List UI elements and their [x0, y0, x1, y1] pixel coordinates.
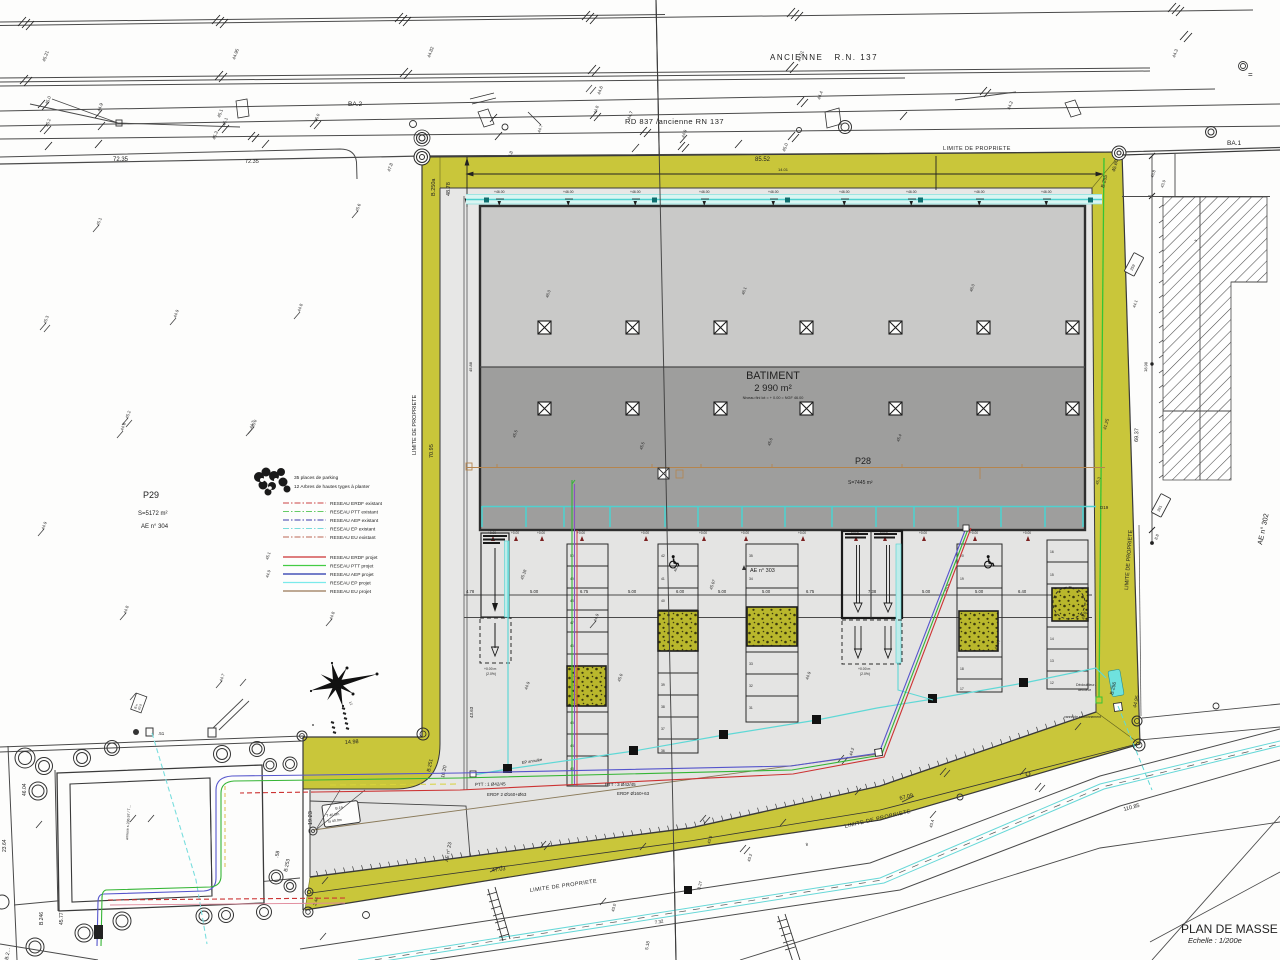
svg-text:37: 37: [661, 727, 665, 731]
svg-text:PTT : 1 Ø42/45: PTT : 1 Ø42/45: [475, 781, 506, 787]
svg-text:RESEAU PTT existant: RESEAU PTT existant: [330, 510, 379, 516]
svg-text:RESEAU PTT projet: RESEAU PTT projet: [330, 564, 374, 570]
svg-text:43.63: 43.63: [469, 706, 474, 718]
svg-text:Echelle : 1/200e: Echelle : 1/200e: [1188, 936, 1242, 945]
svg-text:P29: P29: [143, 490, 159, 500]
svg-text:5.00: 5.00: [762, 589, 771, 594]
svg-text:46.04: 46.04: [22, 783, 28, 796]
svg-text:6.75: 6.75: [806, 589, 815, 594]
svg-text:19: 19: [960, 577, 964, 581]
svg-text:39: 39: [661, 683, 665, 687]
svg-text:+0.00: +0.00: [511, 531, 519, 535]
svg-text:6.40: 6.40: [1018, 589, 1027, 594]
svg-text:72.35: 72.35: [113, 157, 129, 163]
svg-text:Dédoubleur-: Dédoubleur-: [1076, 683, 1097, 687]
svg-text:ANCIENNE R.N. 137: ANCIENNE R.N. 137: [770, 53, 878, 62]
svg-text:5.00: 5.00: [718, 589, 727, 594]
svg-text:35: 35: [749, 554, 753, 558]
svg-text:45.77: 45.77: [59, 912, 65, 925]
svg-text:RESEAU ERDF projet: RESEAU ERDF projet: [330, 555, 378, 561]
svg-text:RESEAU EP projet: RESEAU EP projet: [330, 581, 371, 587]
svg-text:S=7445 m²: S=7445 m²: [848, 480, 873, 486]
svg-text:+46.00: +46.00: [699, 190, 710, 194]
svg-text:+0.00: +0.00: [970, 531, 978, 535]
svg-text:69.37: 69.37: [1134, 428, 1140, 442]
svg-text:RESEAU EP existant: RESEAU EP existant: [330, 527, 376, 533]
svg-text:+0.00 m: +0.00 m: [858, 667, 871, 671]
svg-text:23.64: 23.64: [2, 839, 8, 852]
svg-text:31: 31: [749, 706, 753, 710]
svg-text:17: 17: [960, 687, 964, 691]
svg-text:+0.00: +0.00: [641, 531, 649, 535]
svg-text:+46.00: +46.00: [494, 190, 505, 194]
svg-text:4.78: 4.78: [466, 589, 475, 594]
svg-text:85.52: 85.52: [755, 157, 771, 163]
svg-text:+0.00: +0.00: [741, 531, 749, 535]
svg-text:S=5172 m²: S=5172 m²: [138, 511, 168, 517]
svg-text:5.00: 5.00: [530, 589, 539, 594]
svg-text:70.95: 70.95: [429, 444, 435, 458]
svg-text:+46.00: +46.00: [563, 190, 574, 194]
svg-text:+0.00: +0.00: [537, 531, 545, 535]
svg-text:(2.0%): (2.0%): [860, 672, 870, 676]
svg-text:+0.00 m: +0.00 m: [484, 667, 497, 671]
svg-text:BA.1: BA.1: [1227, 140, 1241, 147]
svg-text:PTT : 3 Ø42/45: PTT : 3 Ø42/45: [605, 782, 636, 787]
svg-text:5.00: 5.00: [975, 589, 984, 594]
svg-text:72.35: 72.35: [245, 159, 259, 165]
svg-text:13: 13: [1050, 659, 1054, 663]
svg-text:18: 18: [960, 667, 964, 671]
svg-text:19.23: 19.23: [308, 811, 314, 825]
svg-text:ERDF 2 Ø160+Ø63: ERDF 2 Ø160+Ø63: [487, 792, 527, 797]
svg-text:B.246: B.246: [39, 912, 45, 925]
svg-text:45.88: 45.88: [468, 361, 473, 372]
svg-text:(2.0%): (2.0%): [486, 672, 496, 676]
svg-text:P28: P28: [855, 456, 871, 466]
svg-text:14.01: 14.01: [778, 167, 789, 172]
svg-text:6.75: 6.75: [580, 589, 589, 594]
svg-text:RESEAU ERDF existant: RESEAU ERDF existant: [330, 501, 383, 507]
svg-text:+0.00: +0.00: [577, 531, 585, 535]
svg-text:18.98: 18.98: [1143, 361, 1148, 372]
svg-text:+0.00: +0.00: [919, 531, 927, 535]
svg-text:35 places de parking: 35 places de parking: [294, 475, 339, 481]
svg-text:14: 14: [1050, 637, 1054, 641]
svg-text:38: 38: [661, 705, 665, 709]
svg-text:32: 32: [749, 684, 753, 688]
svg-text:.51: .51: [158, 731, 165, 736]
svg-text:48.78: 48.78: [446, 182, 452, 196]
svg-text:36: 36: [661, 749, 665, 753]
svg-text:AE n° 303: AE n° 303: [750, 568, 775, 574]
svg-text:D19: D19: [1100, 505, 1109, 510]
svg-text:42: 42: [661, 554, 665, 558]
svg-text:vanne de sectionnement: vanne de sectionnement: [1064, 715, 1101, 719]
svg-text:+46.00: +46.00: [768, 190, 779, 194]
svg-text:+46.00: +46.00: [1041, 190, 1052, 194]
svg-text:+0.00: +0.00: [1023, 531, 1031, 535]
svg-text:=: =: [1248, 70, 1253, 79]
svg-text:+0.00: +0.00: [699, 531, 707, 535]
svg-text:7.38: 7.38: [868, 589, 877, 594]
svg-text:RESEAU AEP projet: RESEAU AEP projet: [330, 572, 374, 578]
svg-text:RESEAU AEP existant: RESEAU AEP existant: [330, 518, 379, 524]
svg-text:BA.2: BA.2: [348, 101, 362, 108]
svg-text:+46.00: +46.00: [839, 190, 850, 194]
svg-text:33: 33: [749, 662, 753, 666]
svg-text:ERDF Ø160+63: ERDF Ø160+63: [617, 791, 650, 796]
svg-text:+0.00: +0.00: [798, 531, 806, 535]
svg-text:+46.00: +46.00: [974, 190, 985, 194]
svg-text:34: 34: [749, 577, 753, 581]
svg-text:40: 40: [661, 599, 665, 603]
svg-text:LIMITE DE PROPRIETE: LIMITE DE PROPRIETE: [943, 146, 1011, 152]
svg-text:+46.00: +46.00: [630, 190, 641, 194]
svg-text:12 Arbres de hautes tyges à pl: 12 Arbres de hautes tyges à planter: [294, 484, 370, 490]
svg-text:B.250a: B.250a: [431, 178, 437, 196]
svg-text:RESEAU EU projet: RESEAU EU projet: [330, 589, 372, 595]
svg-text:LIMITE DE PROPRIETE: LIMITE DE PROPRIETE: [412, 394, 418, 455]
svg-text:12: 12: [1050, 681, 1054, 685]
svg-text:5.00: 5.00: [922, 589, 931, 594]
svg-text:+46.00: +46.00: [906, 190, 917, 194]
svg-text:2 990 m²: 2 990 m²: [754, 383, 792, 394]
svg-text:15: 15: [1050, 573, 1054, 577]
svg-text:5.00: 5.00: [628, 589, 637, 594]
svg-text:RESEAU EU existant: RESEAU EU existant: [330, 535, 376, 541]
svg-text:16: 16: [1050, 550, 1054, 554]
svg-text:PLAN DE MASSE: PLAN DE MASSE: [1181, 922, 1278, 936]
svg-text:Niveau fini lot = + 0.00 = NGF: Niveau fini lot = + 0.00 = NGF 46.00: [743, 396, 804, 400]
svg-text:6.00: 6.00: [676, 589, 685, 594]
svg-text:BATIMENT: BATIMENT: [746, 370, 800, 382]
svg-text:14.98: 14.98: [345, 739, 359, 746]
svg-text:AE n° 304: AE n° 304: [141, 524, 169, 530]
svg-text:41: 41: [661, 577, 665, 581]
svg-text:RD 837 /ancienne RN 137: RD 837 /ancienne RN 137: [625, 117, 724, 126]
